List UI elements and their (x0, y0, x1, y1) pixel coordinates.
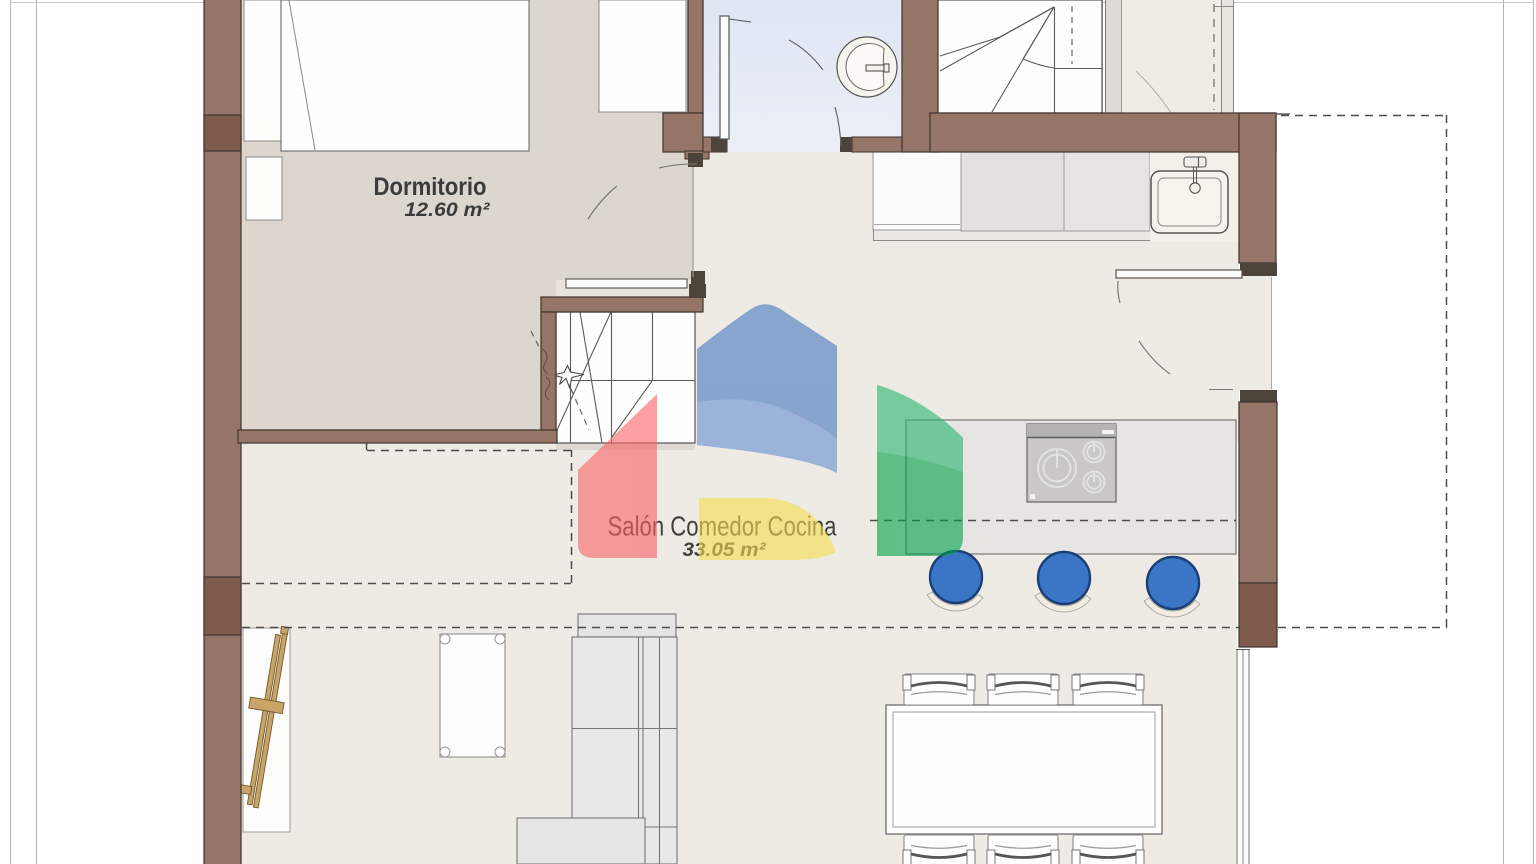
svg-text:Dormitorio: Dormitorio (374, 173, 487, 201)
svg-text:12.60 m²: 12.60 m² (405, 200, 491, 221)
